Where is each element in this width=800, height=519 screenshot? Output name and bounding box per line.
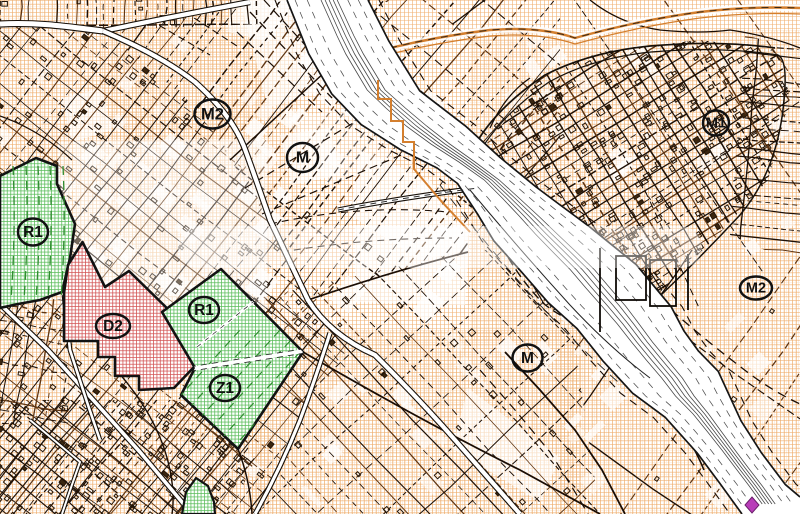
svg-text:M2: M2 [746, 281, 766, 297]
svg-text:R1: R1 [194, 302, 214, 319]
svg-text:M1: M1 [706, 116, 726, 132]
svg-text:D2: D2 [103, 318, 123, 335]
svg-text:R1: R1 [23, 224, 43, 241]
svg-text:M: M [521, 350, 534, 367]
svg-text:M2: M2 [201, 106, 224, 124]
svg-text:M: M [296, 150, 309, 167]
svg-text:Z1: Z1 [216, 380, 234, 397]
